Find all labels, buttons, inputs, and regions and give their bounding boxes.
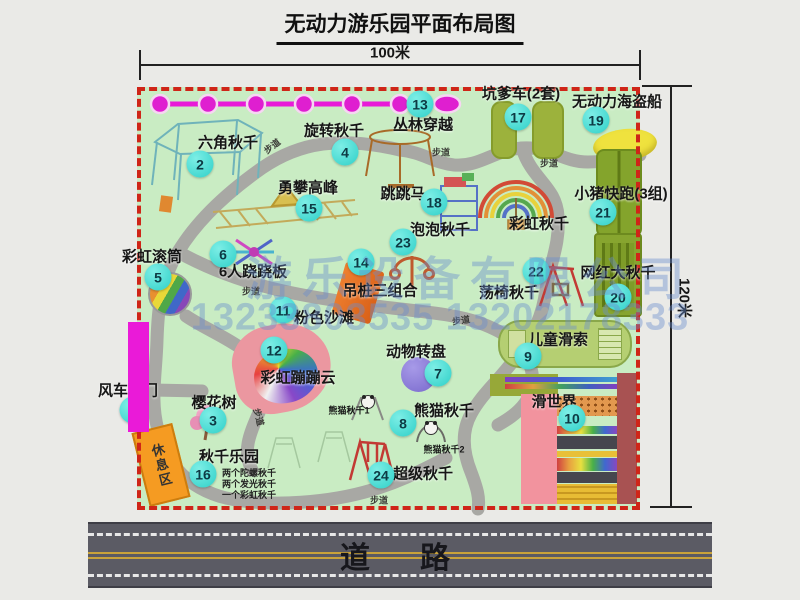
badge-3: 3: [200, 407, 227, 434]
dimension-tick-right-bottom: [650, 506, 692, 508]
badge-22: 22: [523, 258, 550, 285]
label-rainbow-cloud: 彩虹蹦蹦云: [260, 367, 335, 388]
badge-20: 20: [605, 284, 632, 311]
dimension-tick-top-right: [639, 50, 641, 80]
label-rotating-swing: 旋转秋千: [304, 120, 364, 141]
badge-9: 9: [515, 343, 542, 370]
label-pirate-ship: 无动力海盗船: [572, 91, 662, 112]
label-panda-swing: 熊猫秋千: [414, 400, 474, 421]
label-rainbow-arch-swing: 彩虹秋千: [509, 213, 569, 234]
badge-14: 14: [348, 249, 375, 276]
label-swing-chair: 荡椅秋千: [479, 282, 539, 303]
page-title: 无动力游乐园平面布局图: [277, 8, 524, 45]
label-rainbow-roller: 彩虹滚筒: [122, 246, 182, 267]
badge-19: 19: [583, 107, 610, 134]
badge-11: 11: [270, 297, 297, 324]
swing-park-note-1: 两个陀螺秋千: [222, 468, 276, 479]
badge-8: 8: [390, 410, 417, 437]
badge-17: 17: [505, 104, 532, 131]
swing-park-note-2: 两个发光秋千: [222, 479, 276, 490]
road: 道 路: [88, 522, 712, 588]
label-piggy-run: 小猪快跑(3组): [574, 183, 667, 204]
label-panda-swing-2: 熊猫秋千2: [423, 443, 464, 456]
label-animal-carousel: 动物转盘: [386, 341, 446, 362]
swing-park-notes: 两个陀螺秋千 两个发光秋千 一个彩虹秋千: [222, 468, 276, 501]
badge-24: 24: [368, 462, 395, 489]
dimension-line-top: [140, 64, 640, 66]
swing-park-note-3: 一个彩虹秋千: [222, 490, 276, 501]
park-layout-map: 无动力游乐园平面布局图 100米 120米: [0, 0, 800, 600]
dimension-label-width: 100米: [370, 42, 410, 63]
label-jumping-horse: 跳跳马: [380, 183, 425, 204]
windmill-gate-bar: [128, 322, 149, 432]
badge-13: 13: [407, 91, 434, 118]
badge-5: 5: [145, 264, 172, 291]
badge-7: 7: [425, 360, 452, 387]
badge-21: 21: [590, 199, 617, 226]
label-hexagon-swing: 六角秋千: [198, 132, 258, 153]
label-super-swing: 超级秋千: [393, 463, 453, 484]
label-big-swing: 网红大秋千: [580, 262, 655, 283]
label-panda-swing-1: 熊猫秋千1: [328, 404, 369, 417]
badge-4: 4: [332, 139, 359, 166]
badge-2: 2: [187, 151, 214, 178]
badge-15: 15: [296, 195, 323, 222]
label-pit-car: 坑爹车(2套): [482, 83, 560, 104]
badge-10: 10: [559, 405, 586, 432]
road-label: 道 路: [88, 524, 712, 586]
label-pink-beach: 粉色沙滩: [294, 307, 354, 328]
badge-16: 16: [190, 461, 217, 488]
dimension-line-right: [670, 86, 672, 508]
badge-23: 23: [390, 229, 417, 256]
dimension-tick-right-top: [642, 85, 692, 87]
label-bubble-swing: 泡泡秋千: [410, 219, 470, 240]
label-hanging-pile: 吊桩三组合: [342, 280, 417, 301]
badge-6: 6: [210, 241, 237, 268]
dimension-label-height: 120米: [675, 278, 696, 318]
badge-12: 12: [261, 337, 288, 364]
dimension-tick-top-left: [139, 50, 141, 80]
badge-18: 18: [421, 189, 448, 216]
